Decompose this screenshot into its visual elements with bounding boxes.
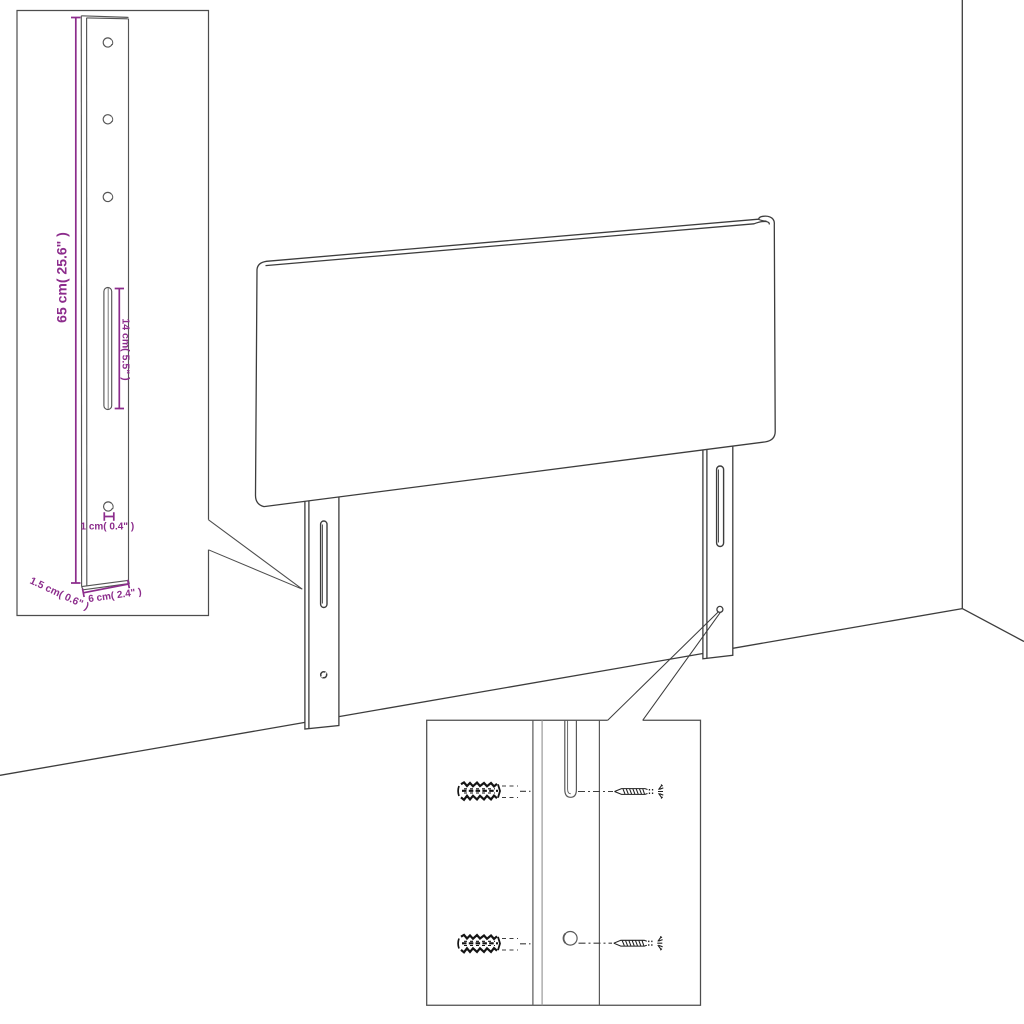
svg-text:14 cm( 5.5" ): 14 cm( 5.5" ) <box>119 318 131 380</box>
svg-text:1 cm( 0.4" ): 1 cm( 0.4" ) <box>81 521 135 532</box>
svg-text:65 cm( 25.6" ): 65 cm( 25.6" ) <box>54 232 70 323</box>
